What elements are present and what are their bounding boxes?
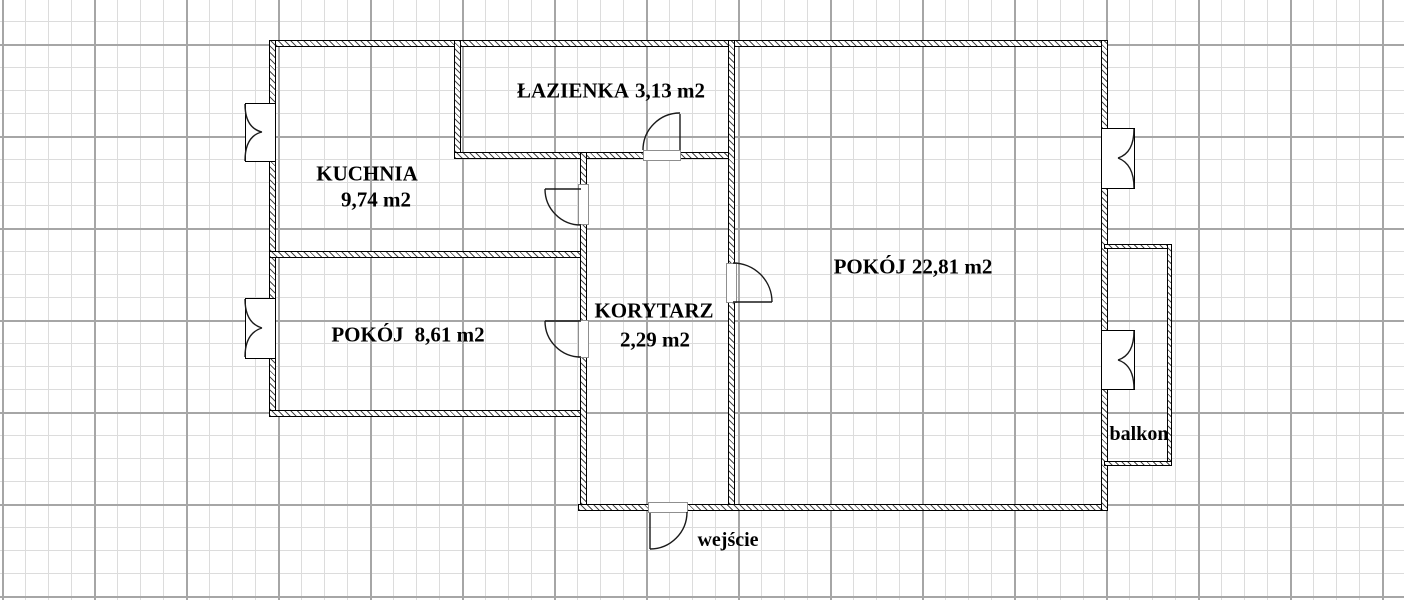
room-label-lazienka: ŁAZIENKA 3,13 m2: [517, 81, 705, 102]
room-area-korytarz: 2,29 m2: [620, 330, 690, 351]
room-name-pokoj-duzy: POKÓJ: [834, 257, 906, 278]
room-area-kuchnia: 9,74 m2: [341, 190, 411, 211]
balcony-label: balkon: [1110, 424, 1169, 444]
bathroom-door-icon: [643, 113, 680, 150]
kitchen-window-casement-icon: [245, 104, 262, 161]
room-name-kuchnia: KUCHNIA: [316, 164, 418, 185]
room-name-korytarz: KORYTARZ: [594, 301, 713, 322]
room-area-pokoj-duzy: 22,81 m2: [912, 257, 993, 278]
room-label-pokoj-duzy: POKÓJ 22,81 m2: [834, 257, 993, 278]
room-area-lazienka: 3,13 m2: [635, 81, 705, 102]
room-name-pokoj-maly: POKÓJ: [331, 325, 403, 346]
floorplan-canvas: ŁAZIENKA 3,13 m2 KUCHNIA 9,74 m2 POKÓJ 8…: [0, 0, 1404, 600]
room-name-lazienka: ŁAZIENKA: [517, 81, 629, 102]
small-room-door-icon: [545, 321, 581, 357]
balcony-door-casement-icon: [1118, 331, 1134, 389]
large-room-door-icon: [733, 263, 772, 302]
room-area-pokoj-maly: 8,61 m2: [415, 325, 485, 346]
large-room-window-casement-icon: [1118, 129, 1134, 188]
entrance-label: wejście: [697, 530, 758, 550]
room-label-pokoj-maly: POKÓJ 8,61 m2: [331, 325, 484, 346]
small-room-window-casement-icon: [245, 299, 262, 357]
entrance-door-icon: [650, 512, 687, 549]
kitchen-door-icon: [545, 189, 581, 225]
